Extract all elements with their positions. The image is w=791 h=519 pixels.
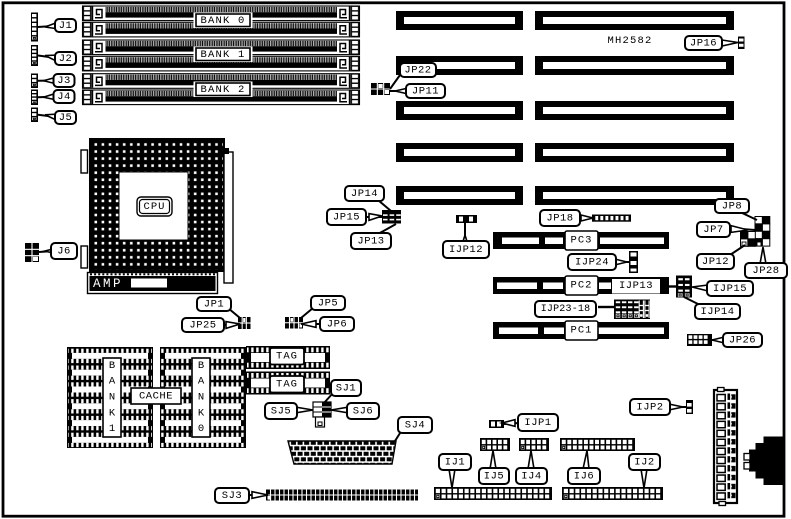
svg-text:SJ6: SJ6 bbox=[353, 406, 373, 418]
svg-text:JP22: JP22 bbox=[404, 65, 431, 77]
svg-text:JP5: JP5 bbox=[318, 298, 338, 310]
svg-text:J1: J1 bbox=[59, 20, 73, 32]
svg-text:IJP24: IJP24 bbox=[575, 257, 609, 269]
svg-text:JP7: JP7 bbox=[703, 224, 723, 236]
svg-text:IJP1: IJP1 bbox=[524, 417, 551, 429]
svg-text:CPU: CPU bbox=[144, 201, 166, 213]
svg-text:BANK 0: BANK 0 bbox=[200, 15, 245, 27]
svg-text:JP16: JP16 bbox=[690, 38, 717, 50]
svg-text:IJP2: IJP2 bbox=[636, 402, 663, 414]
svg-text:J5: J5 bbox=[59, 112, 73, 124]
svg-text:B: B bbox=[198, 360, 204, 372]
svg-text:JP1: JP1 bbox=[204, 299, 224, 311]
svg-text:JP12: JP12 bbox=[702, 256, 729, 268]
svg-text:SJ3: SJ3 bbox=[222, 490, 242, 502]
svg-text:K: K bbox=[109, 407, 116, 419]
svg-text:JP11: JP11 bbox=[412, 86, 439, 98]
svg-text:B: B bbox=[109, 360, 115, 372]
svg-text:JP13: JP13 bbox=[357, 236, 384, 248]
svg-text:IJP23-18: IJP23-18 bbox=[541, 304, 591, 315]
svg-text:J6: J6 bbox=[57, 246, 71, 258]
svg-text:JP25: JP25 bbox=[189, 320, 216, 332]
svg-text:A: A bbox=[109, 376, 116, 388]
svg-text:PC2: PC2 bbox=[571, 280, 593, 292]
svg-text:IJ1: IJ1 bbox=[445, 457, 465, 469]
svg-text:IJP12: IJP12 bbox=[449, 244, 483, 256]
svg-text:IJP13: IJP13 bbox=[619, 280, 653, 292]
svg-text:JP14: JP14 bbox=[351, 188, 378, 200]
svg-text:IJ2: IJ2 bbox=[634, 457, 654, 469]
svg-text:1: 1 bbox=[109, 423, 115, 435]
svg-text:JP15: JP15 bbox=[333, 212, 360, 224]
svg-text:TAG: TAG bbox=[276, 379, 298, 391]
svg-text:J4: J4 bbox=[57, 91, 71, 103]
svg-text:0: 0 bbox=[198, 423, 204, 435]
svg-text:IJ6: IJ6 bbox=[574, 471, 594, 483]
svg-text:PC3: PC3 bbox=[571, 235, 593, 247]
svg-text:JP28: JP28 bbox=[752, 265, 779, 277]
svg-text:IJP15: IJP15 bbox=[713, 283, 747, 295]
svg-text:JP18: JP18 bbox=[546, 213, 573, 225]
svg-text:A: A bbox=[198, 376, 205, 388]
svg-text:TAG: TAG bbox=[276, 351, 298, 363]
svg-text:AMP: AMP bbox=[93, 277, 123, 291]
svg-text:JP26: JP26 bbox=[729, 335, 756, 347]
svg-text:MH2582: MH2582 bbox=[607, 35, 652, 47]
svg-text:BANK 2: BANK 2 bbox=[200, 84, 245, 96]
svg-text:JP6: JP6 bbox=[327, 319, 347, 331]
svg-text:IJ5: IJ5 bbox=[484, 471, 504, 483]
svg-text:IJP14: IJP14 bbox=[700, 306, 734, 318]
svg-text:SJ1: SJ1 bbox=[336, 383, 356, 395]
svg-text:J3: J3 bbox=[57, 75, 71, 87]
svg-text:BANK 1: BANK 1 bbox=[200, 49, 245, 61]
svg-text:SJ4: SJ4 bbox=[405, 420, 425, 432]
svg-text:N: N bbox=[109, 392, 115, 404]
svg-text:PC1: PC1 bbox=[571, 325, 593, 337]
svg-text:J2: J2 bbox=[59, 53, 73, 65]
svg-text:K: K bbox=[198, 407, 205, 419]
svg-text:N: N bbox=[198, 392, 204, 404]
svg-text:IJ4: IJ4 bbox=[521, 471, 541, 483]
svg-text:JP8: JP8 bbox=[722, 201, 742, 213]
svg-text:CACHE: CACHE bbox=[139, 391, 173, 403]
svg-text:SJ5: SJ5 bbox=[271, 406, 291, 418]
